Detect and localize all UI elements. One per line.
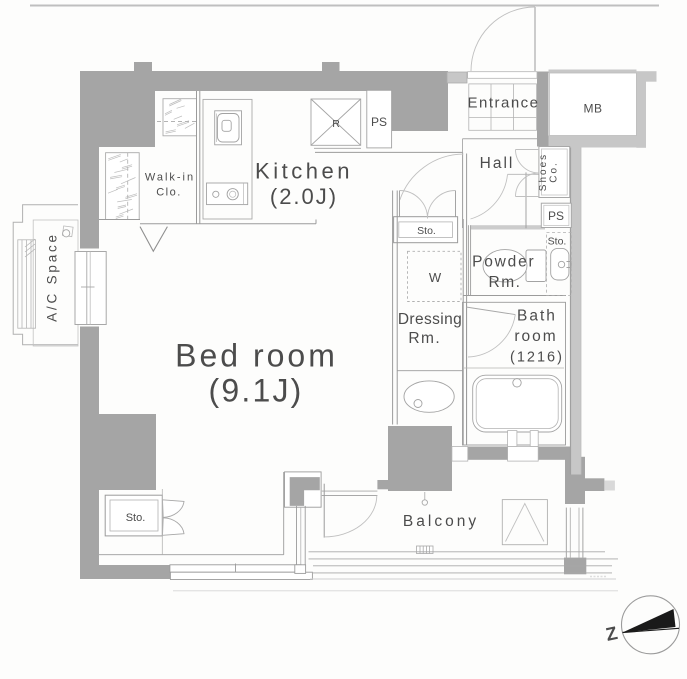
svg-text:Walk-in: Walk-in [145, 172, 195, 184]
svg-text:room: room [514, 328, 557, 345]
svg-text:A/C Space: A/C Space [45, 232, 60, 322]
svg-text:(9.1J): (9.1J) [209, 373, 304, 409]
svg-text:Hall: Hall [480, 155, 515, 172]
svg-text:Shoes: Shoes [538, 153, 549, 191]
svg-text:Balcony: Balcony [403, 513, 479, 530]
svg-text:Sto.: Sto. [126, 512, 146, 524]
svg-text:PS: PS [371, 115, 387, 129]
svg-text:Rm.: Rm. [408, 330, 441, 347]
svg-text:Co.: Co. [549, 161, 560, 183]
svg-text:Sto.: Sto. [548, 236, 567, 248]
svg-text:Sto.: Sto. [417, 225, 436, 237]
svg-text:PS: PS [548, 209, 564, 223]
svg-text:Rm.: Rm. [489, 274, 522, 291]
svg-text:Powder: Powder [472, 254, 535, 271]
svg-text:Entrance: Entrance [467, 95, 539, 112]
svg-text:Bed room: Bed room [175, 338, 338, 374]
svg-text:W: W [429, 270, 442, 285]
svg-text:(1216): (1216) [510, 350, 564, 366]
svg-text:Dressing: Dressing [398, 311, 462, 328]
svg-text:Z: Z [604, 622, 619, 645]
svg-text:(2.0J): (2.0J) [270, 184, 338, 209]
svg-text:Clo.: Clo. [156, 187, 182, 199]
svg-text:Bath: Bath [517, 308, 557, 325]
svg-text:R: R [332, 118, 340, 130]
svg-text:Kitchen: Kitchen [255, 159, 353, 184]
svg-text:MB: MB [584, 102, 603, 116]
